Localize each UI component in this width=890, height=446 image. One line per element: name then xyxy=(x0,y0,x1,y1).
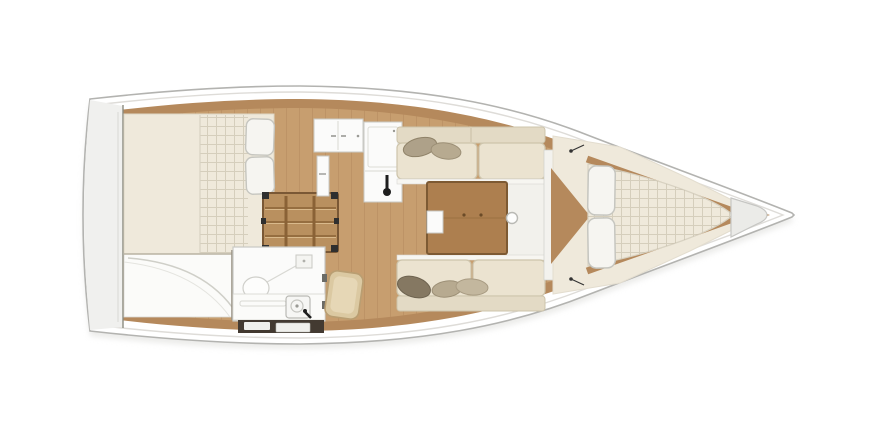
floor-plan-canvas: Sailing yacht interior layout — top-view… xyxy=(0,0,890,446)
vberth-pillow xyxy=(588,166,616,215)
seat-cushion xyxy=(479,143,545,179)
vberth-pillow xyxy=(588,218,616,268)
aft-bed-pillow xyxy=(245,119,274,156)
aft-bed-quilt xyxy=(200,115,248,253)
galley-locker-door xyxy=(317,156,329,196)
settee-front-edge xyxy=(397,255,545,260)
yacht-floor-plan: Sailing yacht interior layout — top-view… xyxy=(0,0,890,446)
companionway-steps xyxy=(261,192,339,252)
stern-locker-panel xyxy=(84,100,123,330)
salon-table xyxy=(427,182,518,254)
galley-sink-cabinet xyxy=(364,122,402,202)
table-leaf-support xyxy=(427,211,443,233)
head-lockers xyxy=(238,320,324,333)
aft-bed-pillow xyxy=(245,157,274,195)
settee-bottom xyxy=(395,255,545,311)
head-vanity xyxy=(233,294,325,320)
head-sink xyxy=(286,296,311,318)
head-door xyxy=(324,270,364,320)
table-support-post xyxy=(507,213,518,224)
door-hinge xyxy=(322,274,327,282)
aft-cabin-seat xyxy=(124,254,238,317)
settee-top xyxy=(397,127,545,184)
